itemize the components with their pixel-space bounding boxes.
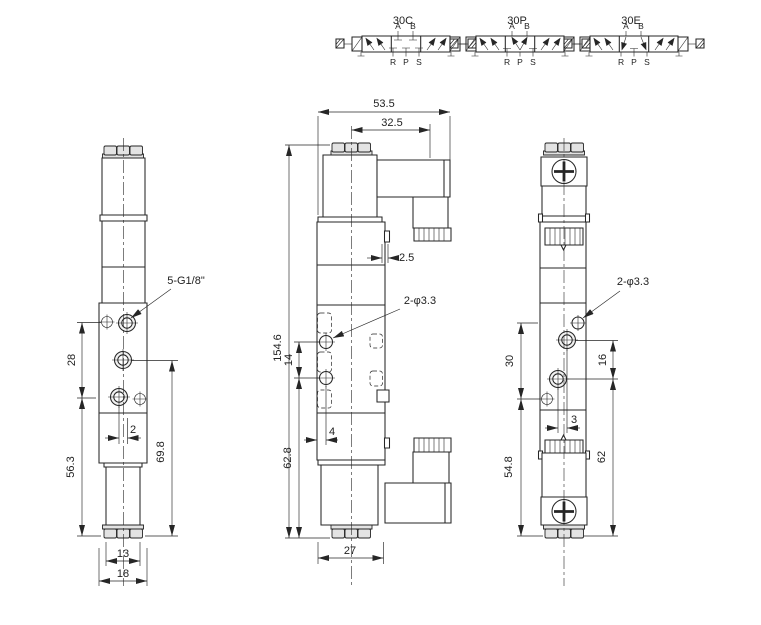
front-dim-13: 13 — [106, 542, 140, 566]
front-top-nuts — [103, 146, 144, 158]
dim-label-18: 18 — [117, 568, 129, 580]
dim-label-2: 2 — [130, 424, 136, 436]
dim-label-2-5: 2.5 — [399, 252, 414, 264]
side-dim-27: 27 — [318, 542, 384, 564]
back-view: 2-φ3.3 30 54.8 16 62 3 — [503, 138, 649, 586]
port-b-label: B — [524, 21, 530, 31]
side-dim-62-8: 62.8 — [282, 378, 299, 538]
pilot-solenoid-left — [450, 37, 479, 56]
port-s-label: S — [530, 57, 536, 67]
side-top-coil — [318, 155, 382, 222]
port-a-label: A — [395, 21, 401, 31]
side-bottom-connector — [385, 438, 451, 523]
port-r-label: R — [390, 57, 396, 67]
dim-label-62-8: 62.8 — [282, 447, 294, 468]
thread-label: 5-G1/8" — [167, 275, 205, 287]
symbol-30C: 30C A B R P S — [336, 15, 476, 67]
front-dim-56-3: 56.3 — [65, 398, 101, 536]
pilot-solenoid-left — [564, 37, 593, 56]
manual-override — [385, 231, 390, 242]
front-bottom-coil — [104, 463, 142, 525]
valve-technical-drawing: 30C A B R P S — [0, 0, 761, 625]
front-dim-28: 28 — [66, 323, 101, 399]
dim-label-56-3: 56.3 — [65, 456, 77, 477]
side-bottom-coil — [318, 460, 385, 525]
side-dim-14: 14 — [283, 342, 319, 378]
dim-label-3: 3 — [571, 414, 577, 426]
drawing-canvas: 30C A B R P S — [0, 0, 761, 625]
dim-label-54-8: 54.8 — [503, 456, 515, 477]
port-p-label: P — [517, 57, 523, 67]
dim-label-16: 16 — [597, 354, 609, 366]
dim-label-28: 28 — [66, 354, 78, 366]
port-s-label: S — [644, 57, 650, 67]
pilot-solenoid-right — [676, 37, 705, 56]
port-p-label: P — [631, 57, 637, 67]
back-dim-30: 30 — [504, 323, 540, 399]
symbol-30E: 30E A B R P S — [564, 15, 704, 67]
back-hole-callout: 2-φ3.3 — [583, 276, 649, 318]
port-s-label: S — [416, 57, 422, 67]
port-r-label: R — [618, 57, 624, 67]
side-view: 53.5 32.5 2.5 2-φ3.3 154.6 14 — [272, 98, 451, 586]
back-dim-54-8: 54.8 — [503, 399, 543, 536]
dim-label-53-5: 53.5 — [373, 98, 394, 110]
dim-label-27: 27 — [344, 545, 356, 557]
pilot-solenoid-left — [336, 37, 365, 56]
port-b-label: B — [638, 21, 644, 31]
dim-label-62: 62 — [596, 451, 608, 463]
dim-label-14: 14 — [283, 354, 295, 366]
port-b-label: B — [410, 21, 416, 31]
dim-label-32-5: 32.5 — [381, 117, 402, 129]
pilot-solenoid-right — [562, 37, 591, 56]
symbol-30P: 30P A B R P S — [450, 15, 590, 67]
dim-label-4: 4 — [329, 426, 335, 438]
front-bottom-nuts — [103, 525, 144, 538]
port-a-label: A — [623, 21, 629, 31]
dim-label-69-8: 69.8 — [155, 441, 167, 462]
pilot-solenoid-right — [448, 37, 477, 56]
port-p-label: P — [403, 57, 409, 67]
port-r-label: R — [504, 57, 510, 67]
port-a-label: A — [509, 21, 515, 31]
mount-hole-label: 2-φ3.3 — [617, 276, 649, 288]
front-view: 28 56.3 69.8 2 13 18 — [65, 138, 205, 586]
mount-hole-label: 2-φ3.3 — [404, 295, 436, 307]
side-top-connector — [377, 160, 451, 241]
dim-label-13: 13 — [117, 548, 129, 560]
dim-label-30: 30 — [504, 355, 516, 367]
